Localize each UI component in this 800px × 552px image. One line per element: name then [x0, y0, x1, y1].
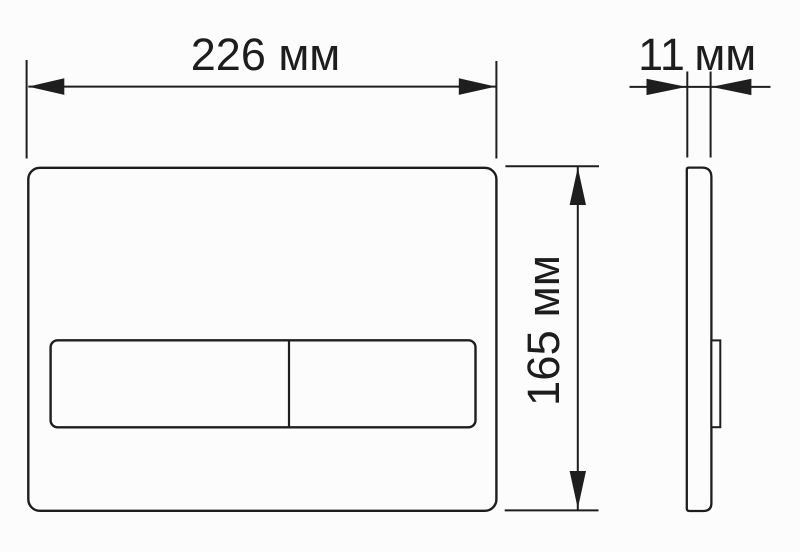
svg-text:11: 11	[638, 29, 685, 80]
svg-text:165 мм: 165 мм	[518, 255, 569, 406]
svg-text:226 мм: 226 мм	[191, 29, 340, 80]
svg-text:мм: мм	[694, 29, 756, 80]
